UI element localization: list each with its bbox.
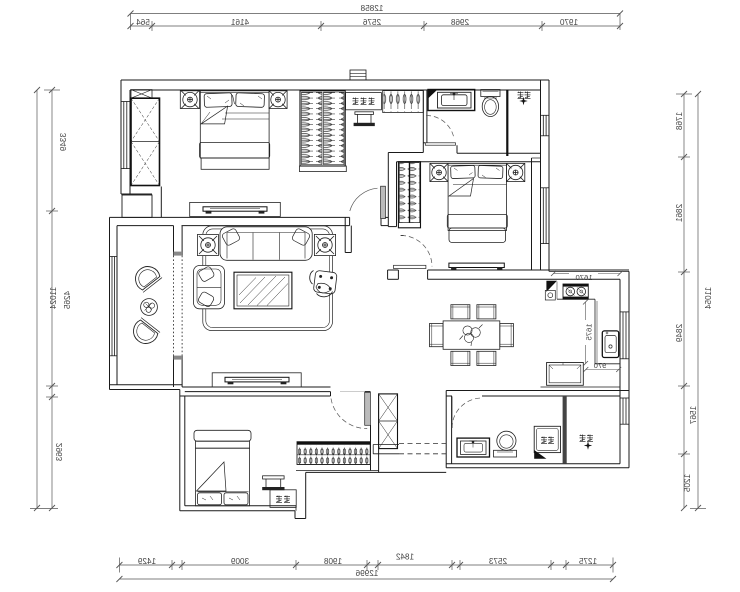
svg-text:2861: 2861 bbox=[675, 204, 684, 223]
svg-text:2576: 2576 bbox=[362, 18, 381, 27]
svg-text:1908: 1908 bbox=[323, 557, 342, 566]
svg-text:2968: 2968 bbox=[450, 18, 469, 27]
svg-text:1768: 1768 bbox=[675, 112, 684, 131]
svg-text:970: 970 bbox=[594, 361, 607, 370]
svg-text:4265: 4265 bbox=[63, 291, 72, 310]
svg-text:2573: 2573 bbox=[488, 557, 507, 566]
svg-text:1670: 1670 bbox=[576, 273, 593, 282]
svg-text:1429: 1429 bbox=[137, 557, 156, 566]
svg-text:1675: 1675 bbox=[585, 324, 594, 341]
svg-text:564: 564 bbox=[136, 18, 150, 27]
svg-text:2963: 2963 bbox=[55, 443, 64, 462]
svg-text:11024: 11024 bbox=[49, 287, 58, 310]
svg-text:1970: 1970 bbox=[559, 18, 578, 27]
svg-text:1205: 1205 bbox=[683, 474, 692, 493]
svg-text:12996: 12996 bbox=[355, 569, 378, 578]
svg-text:4161: 4161 bbox=[230, 18, 249, 27]
svg-text:1567: 1567 bbox=[689, 406, 698, 425]
svg-text:12858: 12858 bbox=[360, 4, 383, 13]
svg-text:1275: 1275 bbox=[578, 557, 597, 566]
svg-text:3349: 3349 bbox=[59, 133, 68, 152]
svg-text:11054: 11054 bbox=[704, 287, 713, 310]
svg-text:3009: 3009 bbox=[230, 557, 249, 566]
svg-text:1842: 1842 bbox=[395, 553, 414, 562]
svg-text:2849: 2849 bbox=[675, 324, 684, 343]
